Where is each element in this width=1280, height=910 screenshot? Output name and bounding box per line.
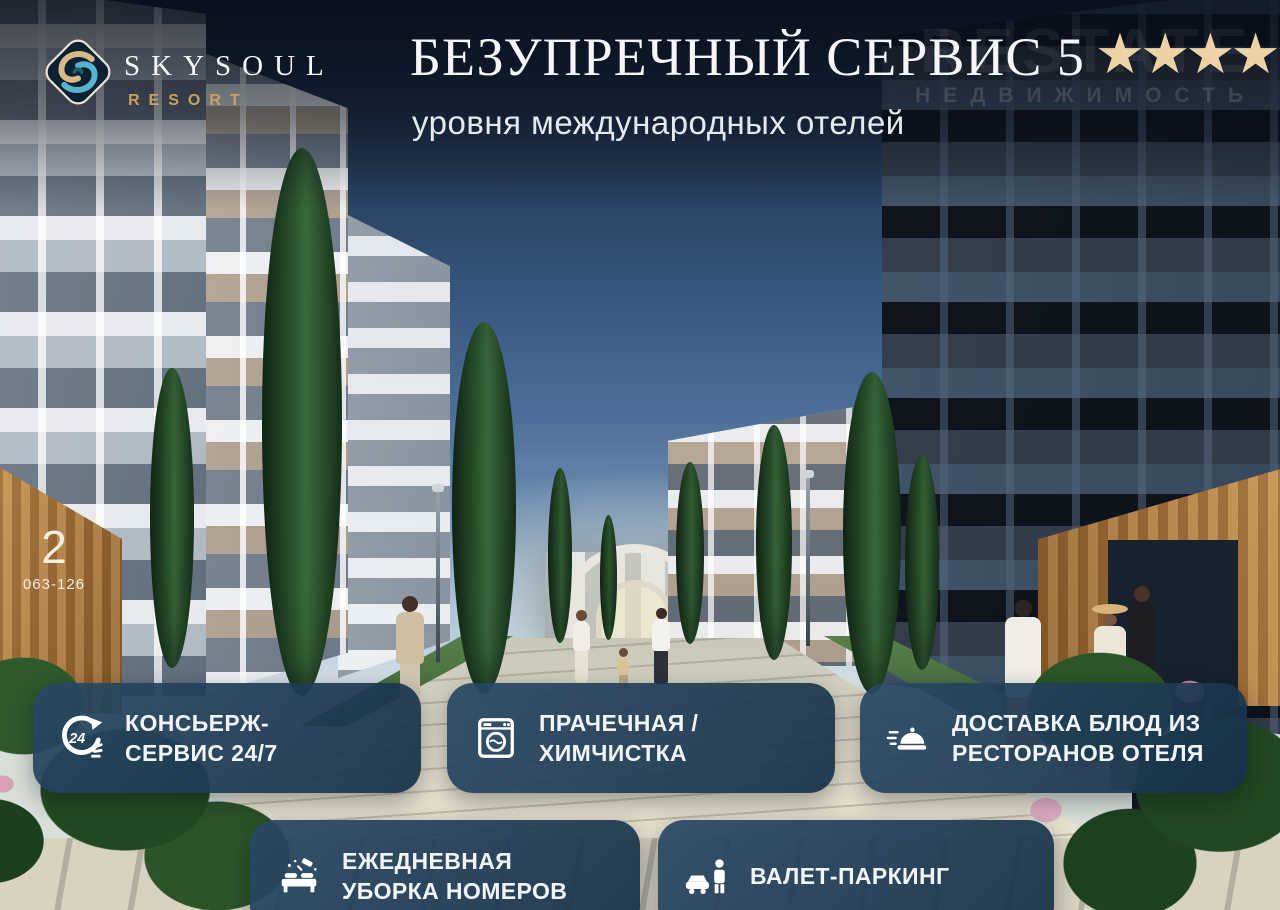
cypress-tree [905, 455, 939, 670]
feature-card-valet-parking: ВАЛЕТ-ПАРКИНГ [658, 820, 1054, 910]
laundry-icon [473, 715, 519, 761]
promo-image: 2 063-126 [0, 0, 1280, 910]
feature-label: ЕЖЕДНЕВНАЯ УБОРКА НОМЕРОВ [342, 846, 567, 907]
skysoul-logo-icon [34, 28, 122, 116]
cypress-tree [843, 372, 901, 694]
brand-name: SKYSOUL [124, 50, 335, 83]
cypress-tree [600, 515, 617, 640]
feature-card-concierge: 24 КОНСЬЕРЖ- СЕРВИС 24/7 [33, 683, 421, 793]
feature-card-laundry: ПРАЧЕЧНАЯ / ХИМЧИСТКА [447, 683, 835, 793]
street-lamp [436, 492, 440, 662]
feature-label: ВАЛЕТ-ПАРКИНГ [750, 861, 949, 891]
housekeeping-icon [276, 853, 322, 899]
feature-label: ПРАЧЕЧНАЯ / ХИМЧИСТКА [539, 708, 698, 769]
hero-title: БЕЗУПРЕЧНЫЙ СЕРВИС 5 [410, 26, 1085, 88]
concierge-24-7-icon: 24 [59, 715, 105, 761]
svg-text:24: 24 [68, 731, 85, 747]
cypress-tree [756, 425, 792, 660]
street-lamp [806, 478, 810, 646]
feature-card-food-delivery: ДОСТАВКА БЛЮД ИЗ РЕСТОРАНОВ ОТЕЛЯ [860, 683, 1247, 793]
pedestrian [573, 610, 590, 683]
feature-card-housekeeping: ЕЖЕДНЕВНАЯ УБОРКА НОМЕРОВ [250, 820, 640, 910]
unit-range: 063-126 [8, 576, 100, 593]
hero-title-row: БЕЗУПРЕЧНЫЙ СЕРВИС 5 ★★★★★ [410, 26, 1280, 88]
cypress-tree [262, 148, 342, 696]
feature-label: КОНСЬЕРЖ- СЕРВИС 24/7 [125, 708, 278, 769]
cypress-tree [676, 462, 704, 644]
pedestrian [652, 608, 670, 685]
cypress-tree [452, 322, 516, 694]
valet-parking-icon [684, 853, 730, 899]
building-number: 2 [8, 524, 100, 570]
brand-tagline: RESORT [128, 92, 249, 110]
mid-left-building [338, 210, 450, 678]
five-stars-icon: ★★★★★ [1095, 22, 1280, 87]
hero-subtitle: уровня международных отелей [412, 104, 905, 142]
feature-label: ДОСТАВКА БЛЮД ИЗ РЕСТОРАНОВ ОТЕЛЯ [952, 708, 1204, 769]
cypress-tree [548, 468, 572, 643]
building-number-sign: 2 063-126 [8, 524, 100, 593]
food-delivery-icon [886, 715, 932, 761]
